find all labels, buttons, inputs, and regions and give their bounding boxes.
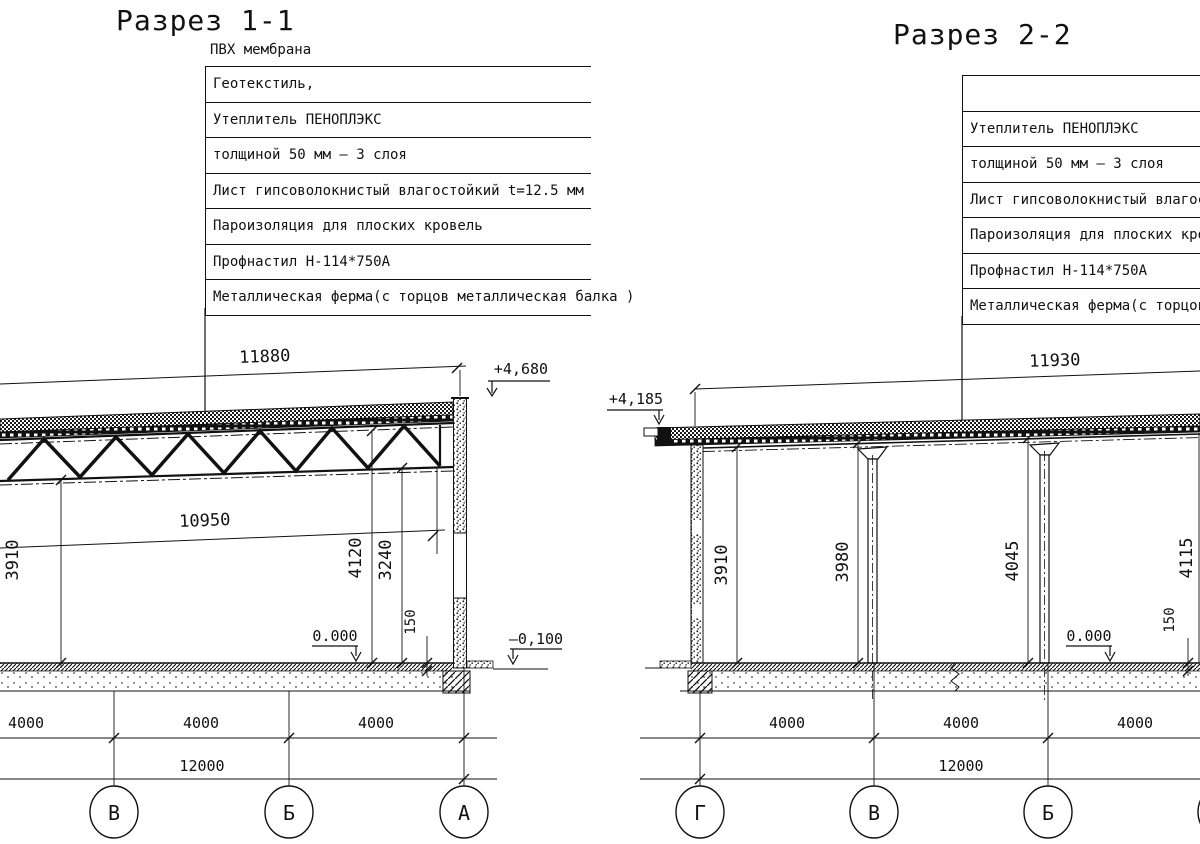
roof-edge-beam — [657, 427, 671, 445]
dimension-total-span: 12000 — [640, 757, 1200, 784]
steel-column — [858, 447, 887, 700]
level-mark-roof: +4,185 — [607, 390, 664, 424]
foundation — [688, 671, 712, 693]
svg-text:+4,680: +4,680 — [494, 360, 548, 378]
svg-text:11930: 11930 — [1029, 350, 1081, 372]
dimension-height-low: 3240 — [376, 463, 407, 668]
left-wall — [691, 445, 703, 663]
grid-axes: В Б А — [90, 668, 488, 838]
svg-text:4115: 4115 — [1177, 538, 1197, 579]
svg-text:150: 150 — [403, 609, 419, 634]
svg-text:В: В — [108, 801, 120, 825]
dimension-height-4: 4115 — [1177, 433, 1199, 663]
svg-text:Б: Б — [283, 801, 295, 825]
svg-text:4120: 4120 — [346, 538, 366, 579]
dimension-height-2: 3980 — [833, 438, 863, 668]
svg-text:4000: 4000 — [8, 714, 44, 732]
svg-text:–0,100: –0,100 — [509, 630, 563, 648]
level-mark-roof: +4,680 — [487, 360, 550, 396]
svg-text:10950: 10950 — [179, 510, 231, 532]
svg-text:12000: 12000 — [179, 757, 224, 775]
floor-slab — [645, 661, 1200, 693]
dimension-roof-span: 11930 — [690, 350, 1200, 426]
drawing-sheet: Разрез 1-1 ПВХ мембрана Геотекстиль, Уте… — [0, 0, 1200, 844]
svg-text:0.000: 0.000 — [312, 627, 357, 645]
section-1-1-drawing: 11880 +4,680 10950 3910 4120 — [0, 0, 600, 844]
dimension-axis-spacing: 4000 4000 4000 — [640, 714, 1200, 743]
svg-text:150: 150 — [1162, 607, 1178, 632]
foundation — [443, 671, 470, 693]
svg-text:4000: 4000 — [769, 714, 805, 732]
svg-text:4000: 4000 — [943, 714, 979, 732]
svg-text:Б: Б — [1042, 801, 1054, 825]
level-mark-ground: –0,100 — [508, 630, 563, 664]
svg-text:4000: 4000 — [183, 714, 219, 732]
svg-text:4045: 4045 — [1003, 541, 1023, 582]
roof-edge-flashing — [644, 428, 658, 436]
svg-text:0.000: 0.000 — [1066, 627, 1111, 645]
exterior-apron — [467, 661, 493, 668]
dimension-height-3: 4045 — [1003, 433, 1033, 668]
svg-text:3910: 3910 — [712, 545, 732, 586]
dimension-axis-spacing: 4000 4000 4000 — [0, 714, 497, 743]
roof-slab — [644, 414, 1200, 452]
level-mark-zero: 0.000 — [312, 627, 361, 661]
svg-text:4000: 4000 — [358, 714, 394, 732]
svg-text:12000: 12000 — [938, 757, 983, 775]
svg-text:Г: Г — [694, 801, 706, 825]
svg-text:11880: 11880 — [239, 346, 291, 368]
svg-text:3980: 3980 — [833, 542, 853, 583]
dimension-total-span: 12000 — [0, 757, 497, 784]
level-mark-zero: 0.000 — [1066, 627, 1115, 661]
svg-text:3910: 3910 — [3, 540, 23, 581]
svg-text:А: А — [458, 801, 470, 825]
svg-text:3240: 3240 — [376, 540, 396, 581]
exterior-apron — [660, 661, 691, 668]
dimension-height-1: 3910 — [712, 442, 742, 668]
right-wall — [451, 398, 469, 668]
section-2-2-drawing: +4,185 11930 3910 3980 — [600, 0, 1200, 844]
svg-text:В: В — [868, 801, 880, 825]
dimension-height-left: 3910 — [3, 475, 66, 668]
dimension-roof-span: 11880 — [0, 346, 466, 396]
svg-text:+4,185: +4,185 — [609, 390, 663, 408]
steel-column — [1030, 443, 1059, 700]
svg-text:4000: 4000 — [1117, 714, 1153, 732]
